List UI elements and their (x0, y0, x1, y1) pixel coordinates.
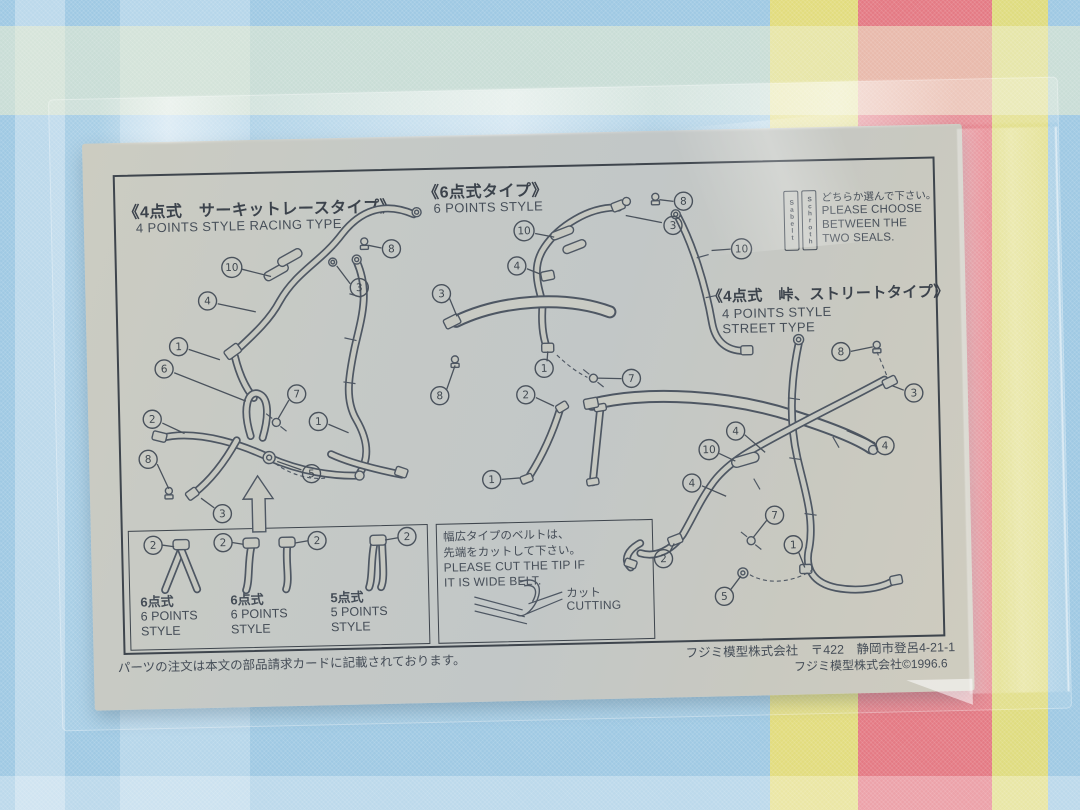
cut-note-en2: IT IS WIDE BELT. (444, 573, 542, 589)
photo-scene: 《4点式 サーキットレースタイプ》 4 POINTS STYLE RACING … (0, 0, 1080, 810)
plastic-bag-corner-fold (906, 679, 973, 706)
belt-type-label-1-en1: 6 POINTS (141, 609, 198, 625)
plastic-bag: 《4点式 サーキットレースタイプ》 4 POINTS STYLE RACING … (48, 77, 1072, 732)
footer-copyright: フジミ模型株式会社©1996.6 (794, 654, 948, 674)
belt-type-label-2: 6点式 6 POINTS STYLE (230, 591, 288, 637)
six-point-title-en: 6 POINTS STYLE (433, 198, 543, 215)
belt-type-label-2-en1: 6 POINTS (231, 607, 288, 623)
belt-type-label-3-jp: 5点式 (330, 589, 387, 606)
belt-type-label-3: 5点式 5 POINTS STYLE (330, 589, 388, 635)
belt-type-label-1: 6点式 6 POINTS STYLE (140, 593, 198, 639)
instruction-sheet: 《4点式 サーキットレースタイプ》 4 POINTS STYLE RACING … (82, 124, 975, 711)
cut-label-en: CUTTING (566, 598, 621, 613)
belt-type-label-1-en2: STYLE (141, 623, 198, 639)
belt-type-label-3-en1: 5 POINTS (331, 604, 388, 620)
seal-note-en3: TWO SEALS. (822, 231, 895, 245)
belt-type-label-3-en2: STYLE (331, 619, 388, 635)
street-title-en1: 4 POINTS STYLE (722, 304, 832, 321)
seal-note-en2: BETWEEN THE (822, 217, 907, 231)
seal-sticker-schroth: Schroth (801, 190, 817, 250)
belt-type-label-2-en2: STYLE (231, 621, 288, 637)
plastic-bag-right-flap (957, 127, 1070, 694)
seal-note-en1: PLEASE CHOOSE (822, 203, 923, 217)
seal-sticker-sabelt: Sabelt (783, 191, 799, 251)
belt-type-label-2-jp: 6点式 (230, 591, 287, 608)
belt-type-label-1-jp: 6点式 (140, 593, 197, 610)
street-title-en2: STREET TYPE (722, 319, 815, 336)
